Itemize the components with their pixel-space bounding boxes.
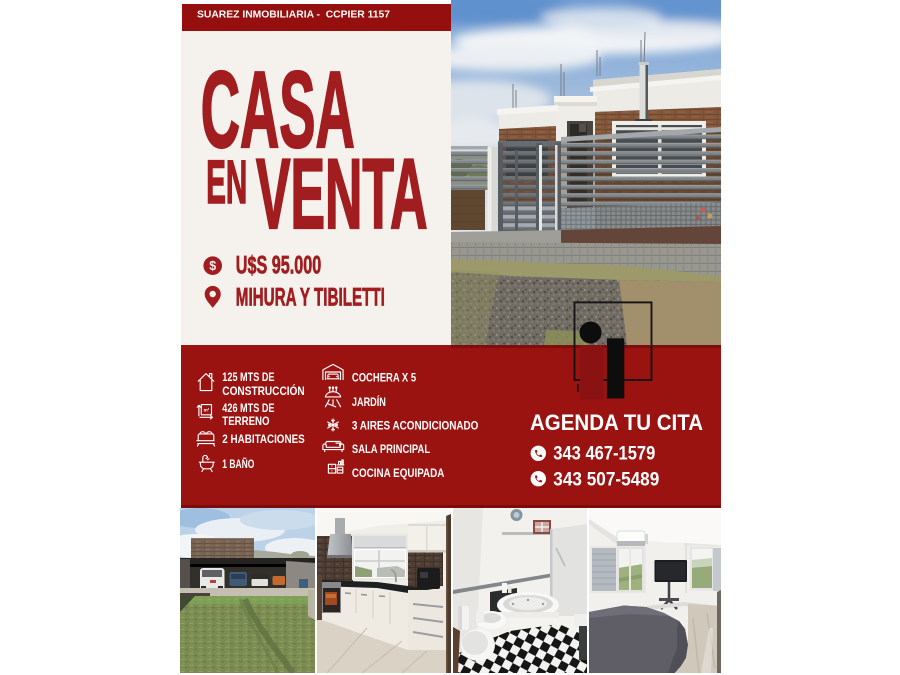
svg-text:SUAREZ INMOBILIARIA - CCPIER: SUAREZ INMOBILIARIA - CCPIER 1157 [197,10,390,21]
svg-text:COCINA EQUIPADA: COCINA EQUIPADA [352,466,445,480]
svg-text:U$S 95.000: U$S 95.000 [236,252,321,280]
svg-text:3 AIRES ACONDICIONADO: 3 AIRES ACONDICIONADO [352,419,479,433]
svg-text:AGENDA TU CITA: AGENDA TU CITA [530,410,703,435]
svg-text:CONSTRUCCIÓN: CONSTRUCCIÓN [222,383,304,398]
svg-text:TERRENO: TERRENO [222,414,269,428]
svg-text:$: $ [209,259,216,273]
svg-text:1 BAÑO: 1 BAÑO [222,456,254,471]
svg-text:EN: EN [206,148,247,216]
svg-text:COCHERA X 5: COCHERA X 5 [352,371,416,385]
svg-text:343 507-5489: 343 507-5489 [553,469,659,491]
svg-text:426 MTS DE: 426 MTS DE [222,401,274,415]
svg-text:125 MTS DE: 125 MTS DE [222,370,274,384]
svg-text:343 467-1579: 343 467-1579 [553,443,655,465]
svg-text:SALA PRINCIPAL: SALA PRINCIPAL [352,442,430,456]
svg-text:JARDÍN: JARDÍN [352,394,386,409]
svg-text:MIHURA Y TIBILETTI: MIHURA Y TIBILETTI [236,284,385,312]
svg-text:2 HABITACIONES: 2 HABITACIONES [222,432,304,446]
svg-text:m²: m² [204,408,210,413]
svg-text:VENTA: VENTA [256,139,428,250]
